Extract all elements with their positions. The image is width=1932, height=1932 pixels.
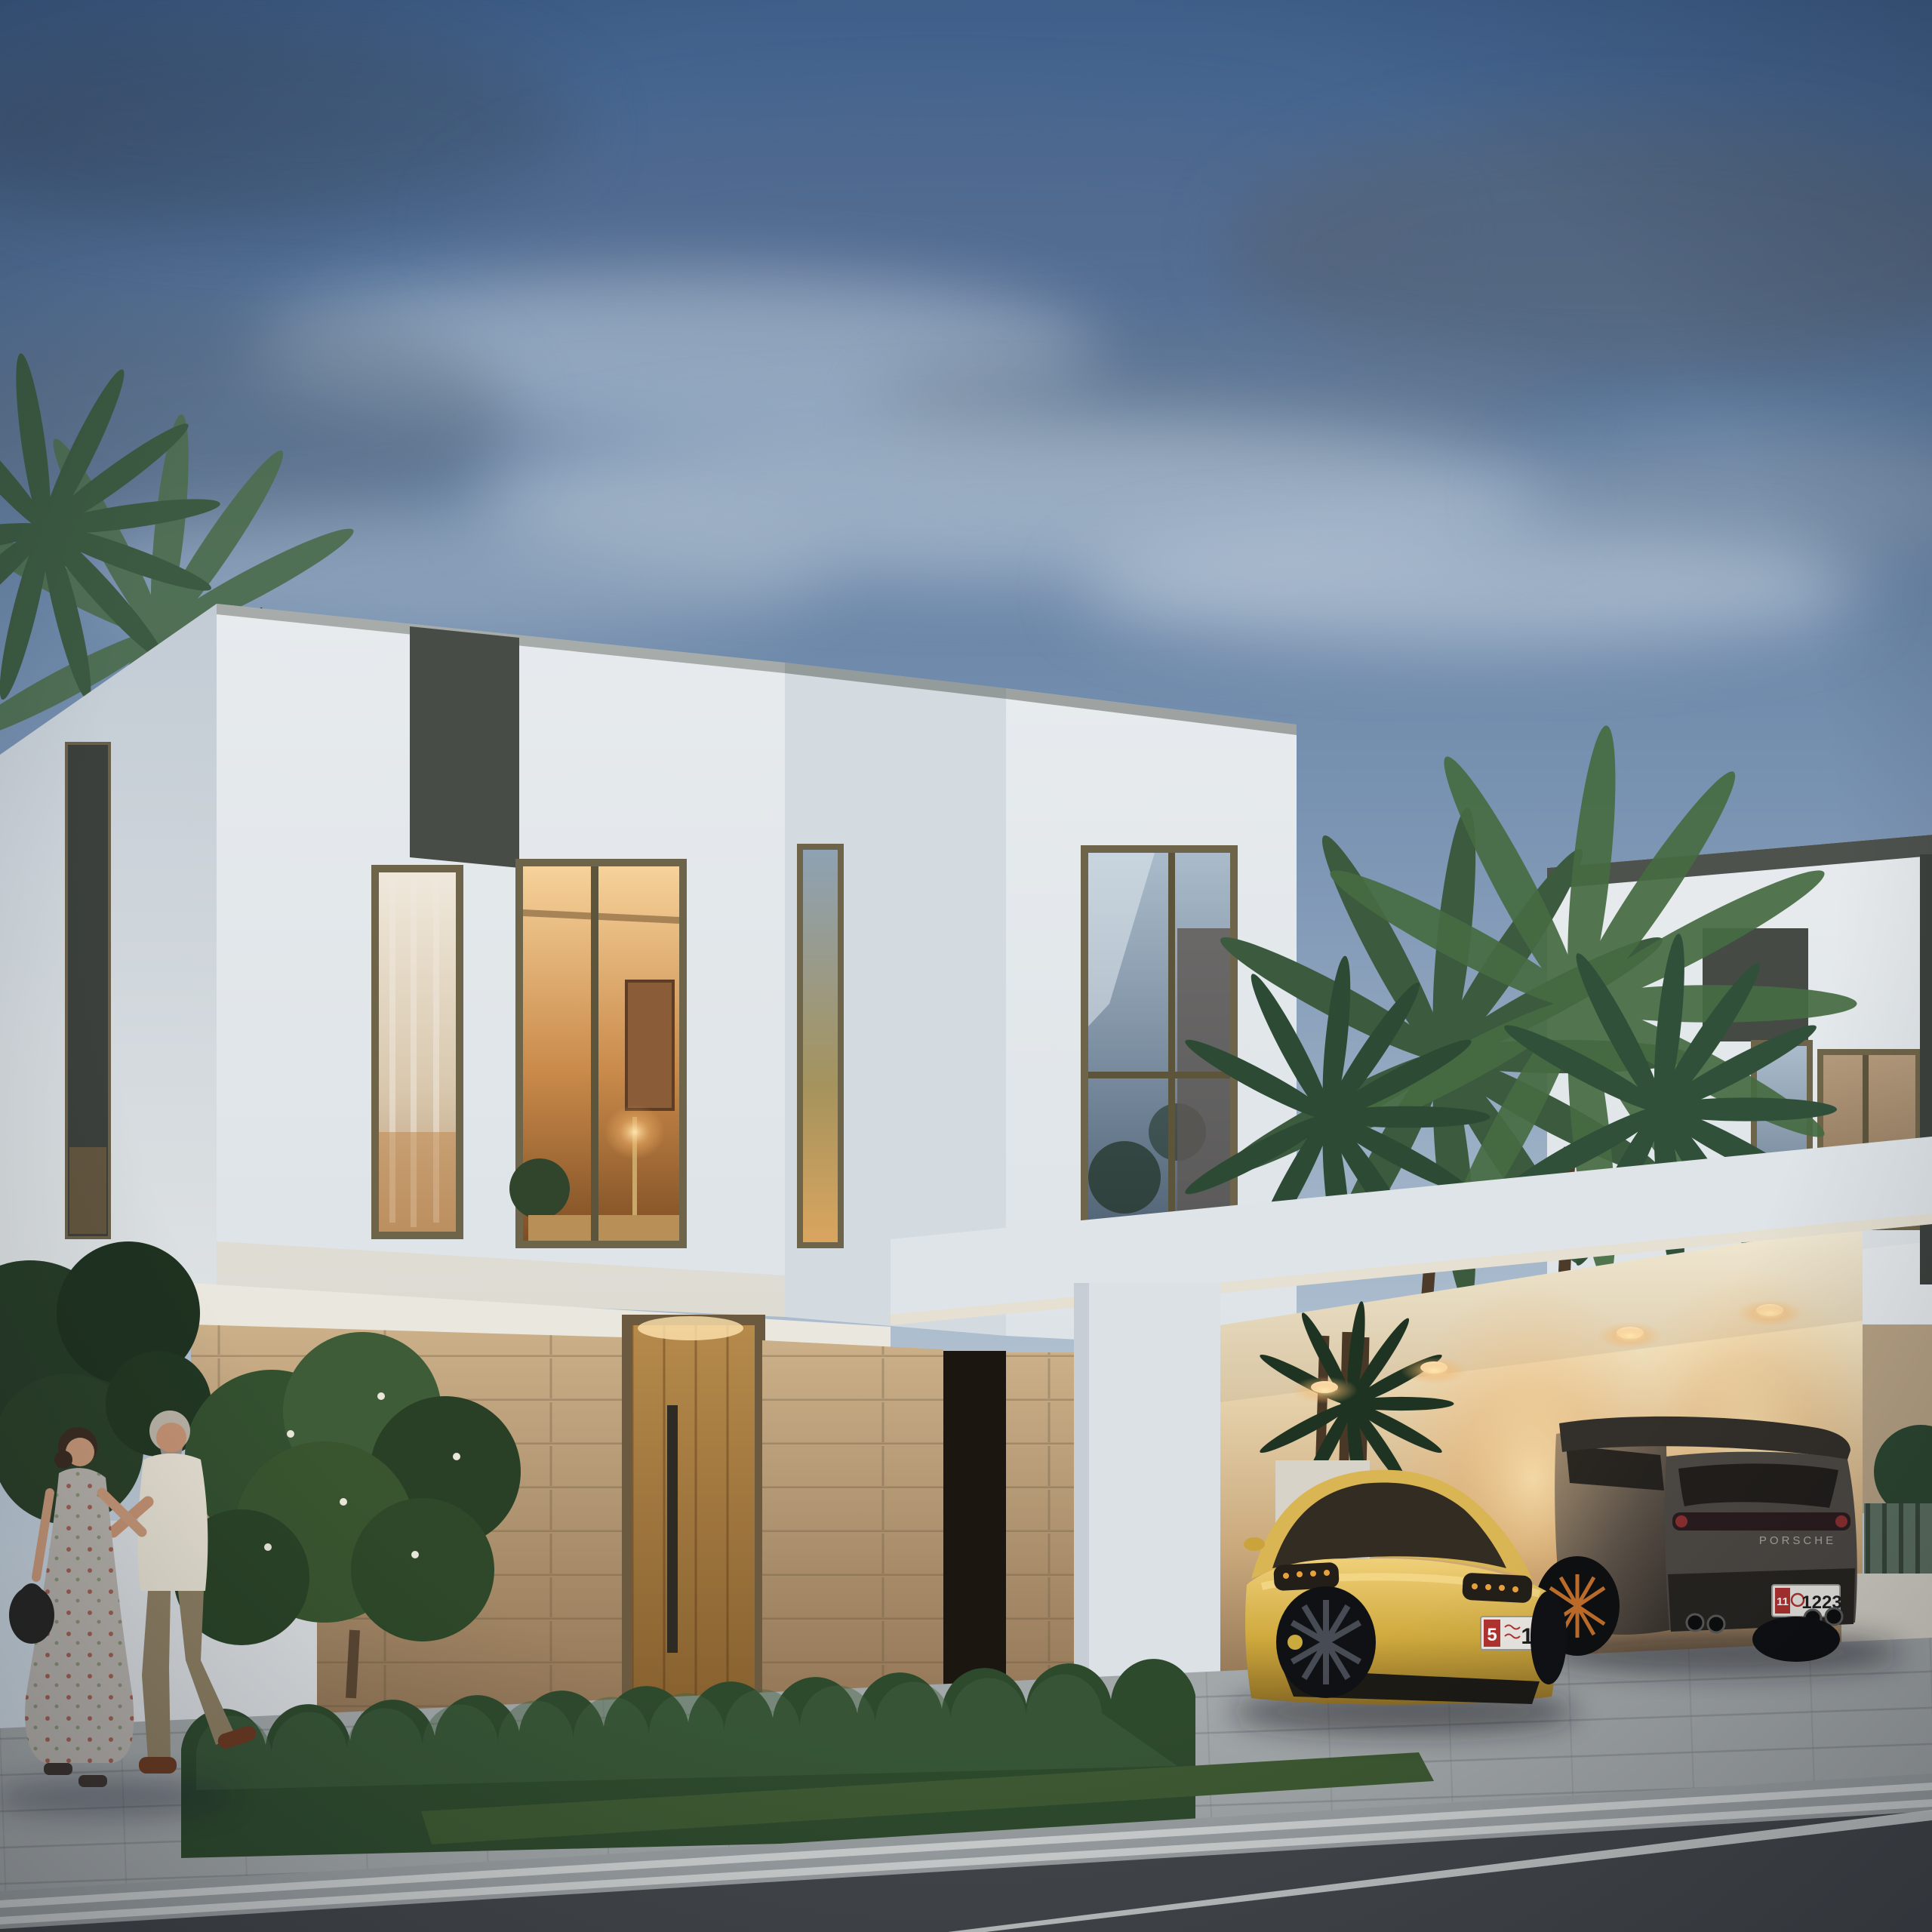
scene-canvas: PORSCHE 11 1223	[0, 0, 1932, 1932]
vignette-overlay	[0, 0, 1932, 1932]
rendered-scene: PORSCHE 11 1223	[0, 0, 1932, 1932]
